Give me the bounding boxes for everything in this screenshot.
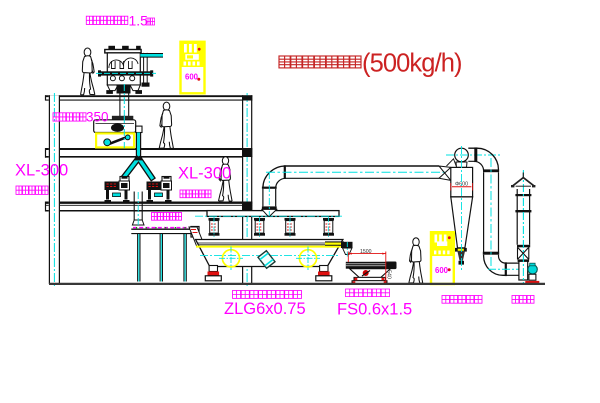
svg-text:XL-300: XL-300: [15, 162, 68, 180]
svg-text:FS0.6x1.5: FS0.6x1.5: [337, 301, 412, 319]
svg-text:600: 600: [185, 73, 199, 82]
svg-text:600: 600: [435, 266, 449, 275]
svg-text:540: 540: [386, 270, 392, 279]
svg-text:ZLG6x0.75: ZLG6x0.75: [224, 300, 306, 318]
svg-text:350: 350: [86, 110, 109, 125]
svg-text:1500: 1500: [360, 249, 372, 255]
svg-text:1.5: 1.5: [129, 13, 149, 29]
svg-text:(500kg/h): (500kg/h): [362, 50, 462, 78]
svg-text:XL-300: XL-300: [178, 165, 231, 183]
